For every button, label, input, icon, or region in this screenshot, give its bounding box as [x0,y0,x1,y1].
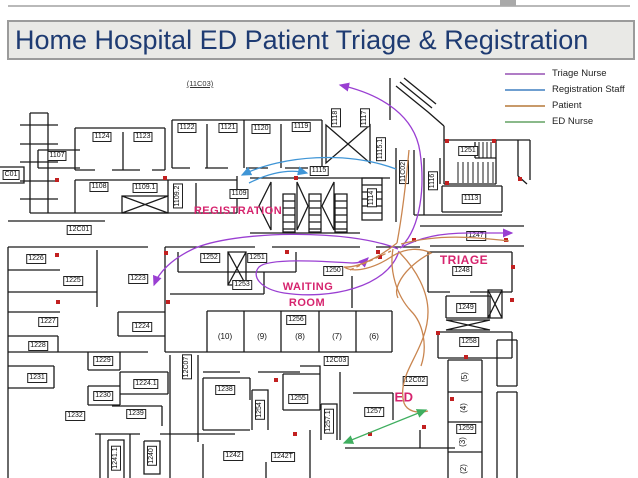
area-label: WAITING [283,281,334,293]
legend-item: Triage Nurse [505,68,635,79]
room-label: 1248 [452,266,472,276]
legend-item: Registration Staff [505,84,635,95]
door-marker [511,265,515,269]
room-label: 1257 [364,407,384,417]
room-label: 1247 [466,231,486,241]
door-marker [274,378,278,382]
legend-swatch-line [505,73,545,75]
door-marker [518,177,522,181]
flow-patient-to-1247 [401,237,509,244]
room-label: 12C07 [182,355,192,380]
room-label: 1115 [310,166,329,176]
door-marker [510,298,514,302]
flow-registration-to-left [242,158,396,175]
room-label: 1122 [177,123,196,133]
room-label: 1252 [200,253,220,263]
area-label: TRIAGE [440,253,488,267]
room-label: (4) [460,402,468,414]
room-label: 1116 [428,172,438,191]
room-label: 1249 [456,303,476,313]
room-label: 1255 [288,394,308,404]
room-label: 1238 [215,385,235,395]
room-label: (8) [294,333,306,341]
room-label: 1224 [132,322,152,332]
room-label: 1257.1 [324,408,334,433]
room-label: 1242 [223,451,243,461]
room-label: 1117 [360,109,370,128]
door-marker [164,251,168,255]
room-label: 1120 [251,124,270,134]
room-label: 1107 [47,151,66,161]
room-label: (2) [460,463,468,475]
door-marker [293,432,297,436]
flow-triage-nurse-to-left [154,234,398,285]
room-label: 1225 [63,276,83,286]
flow-patient-entry [397,150,409,243]
area-label: REGISTRATION [194,205,282,217]
door-marker [436,331,440,335]
room-label: (6) [368,333,380,341]
top-tab [500,0,516,6]
room-label: 1119 [292,122,311,132]
room-label: 1251 [247,253,267,263]
door-marker [504,238,508,242]
door-marker [55,178,59,182]
room-label: C01 [3,170,20,180]
flow-patient-dashed [350,251,391,270]
room-label: 1256 [286,315,306,325]
room-label: 1121 [218,123,237,133]
slide: Home Hospital ED Patient Triage & Regist… [0,0,638,478]
flow-patient-to-ed [399,252,428,412]
room-label: (3) [459,436,467,448]
room-label: 1240 [147,446,157,466]
door-marker [376,250,380,254]
room-label: (5) [461,371,469,383]
door-marker [378,255,382,259]
room-label: (7) [331,333,343,341]
door-marker [445,139,449,143]
room-label: 1241.1 [111,445,121,470]
legend-item-label: Triage Nurse [552,68,607,79]
room-label: (9) [256,333,268,341]
room-label: (10) [217,333,233,341]
room-label: 1229 [93,356,113,366]
area-label: ED [394,390,413,405]
room-label: 1251 [458,146,478,156]
room-label: 1258 [459,337,479,347]
door-marker [492,139,496,143]
room-label: 1109 [229,189,248,199]
legend-item: Patient [505,100,635,111]
room-label: 12C02 [403,376,428,386]
room-label: 1115.1 [376,137,386,161]
door-marker [422,425,426,429]
room-label: 1250 [323,266,343,276]
room-label: 12C03 [324,356,349,366]
flow-triage-nurse-exit-top [340,85,422,246]
room-label: 1114 [367,189,377,208]
room-label: 1124 [92,132,111,142]
room-label: 1242T [271,452,295,462]
flow-ed-nurse [344,410,426,443]
room-label: 1113 [462,194,481,204]
flow-registration-to-1115 [249,171,307,183]
area-label: ROOM [289,297,325,309]
room-label: 12C01 [67,225,92,235]
door-marker [368,432,372,436]
door-marker [445,181,449,185]
room-label: (11C03) [186,80,215,88]
legend-swatch-line [505,105,545,107]
room-label: 1259 [456,424,476,434]
room-label: 1123 [133,132,152,142]
legend-swatch-line [505,121,545,123]
door-marker [450,397,454,401]
room-label: 1109.2 [173,184,183,209]
page-title: Home Hospital ED Patient Triage & Regist… [7,20,635,60]
room-label: 1230 [93,391,113,401]
room-label: 1226 [26,254,46,264]
room-label: 1253 [232,280,252,290]
room-label: 1228 [28,341,48,351]
legend-item-label: Registration Staff [552,84,625,95]
flow-patient-strand-2 [392,249,424,366]
legend-item-label: ED Nurse [552,116,593,127]
door-marker [294,176,298,180]
door-marker [166,300,170,304]
room-label: 1231 [27,373,47,383]
flow-triage-nurse-loop [256,251,399,295]
door-marker [464,355,468,359]
door-marker [285,250,289,254]
legend-item: ED Nurse [505,116,635,127]
legend: Triage NurseRegistration StaffPatientED … [505,68,635,132]
legend-swatch-line [505,89,545,91]
room-label: 11C02 [399,160,409,184]
door-marker [56,300,60,304]
room-label: 1223 [128,274,148,284]
room-label: 1224.1 [133,379,158,389]
room-label: 1254 [255,400,265,420]
room-label: 1227 [38,317,58,327]
room-label: 1108 [89,182,108,192]
top-rule [8,5,630,7]
door-marker [163,176,167,180]
door-marker [412,238,416,242]
flow-triage-nurse-to-1247 [400,233,512,248]
room-label: 1239 [126,409,146,419]
room-label: 1232 [65,411,85,421]
flow-patient-tangle [344,243,431,298]
room-label: 1109.1 [133,183,158,193]
legend-item-label: Patient [552,100,582,111]
door-marker [55,253,59,257]
room-label: 1118 [331,109,341,128]
